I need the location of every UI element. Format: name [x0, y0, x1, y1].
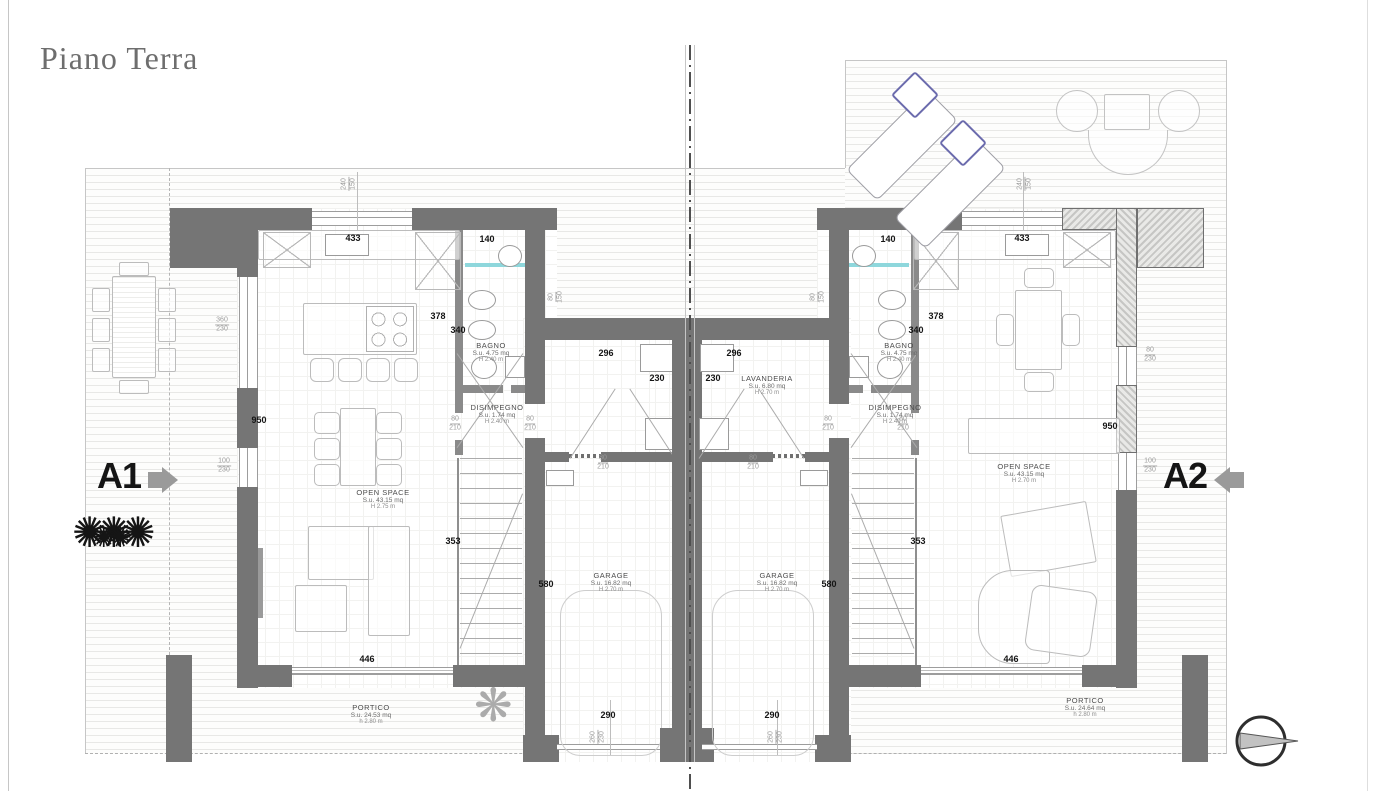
room-label-lavanderia-a2: LAVANDERIA S.u. 6.80 mq H 2.70 m [741, 374, 792, 396]
frac-top: 80 [547, 292, 556, 302]
room-name: BAGNO [473, 341, 510, 350]
sofa-chaise [308, 526, 374, 580]
staircase [460, 458, 522, 665]
toilet [468, 290, 496, 310]
frac-bottom: 150 [350, 178, 358, 190]
room-area: S.u. 6.80 mq [741, 383, 792, 390]
room-label-garage-a1: GARAGE S.u. 16.82 mq H 2.70 m [591, 571, 631, 593]
frac-top: 80 [1145, 346, 1155, 355]
dimension-label: 353 [910, 536, 925, 546]
outdoor-chair [92, 318, 110, 342]
dim-leader [777, 700, 778, 755]
room-area: S.u. 1.74 mq [869, 412, 922, 419]
washbasin [498, 245, 522, 267]
wall-segment-party [672, 318, 696, 762]
tall-cabinet [1063, 232, 1111, 268]
property-centerline [689, 45, 691, 790]
frac-bottom: 210 [747, 464, 759, 472]
unit-label-a2: A2 [1163, 455, 1207, 497]
dimension-fraction: 80210 [449, 415, 461, 432]
wall-segment [237, 208, 258, 277]
window [312, 211, 412, 226]
outdoor-chair [92, 288, 110, 312]
dimension-fraction: 80210 [747, 454, 759, 471]
outdoor-chair [158, 318, 176, 342]
frac-bottom: 210 [897, 425, 909, 433]
room-name: OPEN SPACE [997, 462, 1050, 471]
dining-chair [376, 464, 402, 486]
car-outline [560, 590, 662, 756]
wall-footing [660, 728, 704, 762]
dining-table [340, 408, 376, 486]
frac-bottom: 210 [822, 425, 834, 433]
dining-chair [1024, 268, 1054, 288]
deck-edge-top-left [85, 168, 845, 169]
room-height: H 2.40 m [869, 419, 922, 425]
room-name: DISIMPEGNO [471, 403, 524, 412]
frac-bottom: 230 [599, 731, 607, 743]
room-height: H 2.70 m [741, 390, 792, 396]
room-height: h 2.80 m [351, 719, 391, 725]
frac-bottom: 150 [819, 291, 827, 303]
frac-top: 80 [823, 415, 833, 424]
frac-top: 360 [215, 316, 229, 325]
room-height: H 2.40 m [881, 357, 918, 363]
north-arrow-icon [1234, 712, 1302, 770]
tree-icon: ❋ [474, 682, 513, 728]
party-line-edge [685, 45, 686, 762]
frac-bottom: 210 [449, 425, 461, 433]
dimension-label: 950 [1102, 421, 1117, 431]
wall-segment [170, 208, 237, 268]
room-label-openspace-a2: OPEN SPACE S.u. 43.15 mq H 2.70 m [997, 462, 1050, 484]
dimension-fraction: 80210 [597, 454, 609, 471]
room-name: GARAGE [757, 571, 797, 580]
frac-top: 80 [525, 415, 535, 424]
frac-top: 100 [217, 457, 231, 466]
frac-bottom: 230 [777, 731, 785, 743]
cooktop [366, 306, 414, 352]
staircase [852, 458, 914, 665]
room-name: BAGNO [881, 341, 918, 350]
outdoor-chair [119, 380, 149, 394]
frac-bottom: 230 [216, 326, 228, 334]
bar-stool [394, 358, 418, 382]
room-label-disimpegno-a2: DISIMPEGNO S.u. 1.74 mq H 2.40 m [869, 403, 922, 425]
deck-edge-left [85, 168, 86, 754]
a2-arrow-icon [1230, 472, 1244, 488]
wall-segment [829, 208, 849, 404]
a1-arrow-icon [148, 472, 162, 488]
frac-top: 260 [767, 730, 776, 744]
dimension-label: 340 [908, 325, 923, 335]
dining-table [1015, 290, 1062, 370]
wall-segment [237, 487, 258, 688]
dimension-label: 950 [251, 415, 266, 425]
dimension-fraction: 240150 [1016, 177, 1033, 191]
outdoor-armchair [1158, 90, 1200, 132]
floor-plan-sheet: Piano Terra [0, 0, 1374, 791]
dimension-label: 290 [600, 710, 615, 720]
frac-bottom: 230 [1144, 356, 1156, 364]
wall-segment [523, 735, 559, 762]
note-box [546, 470, 574, 486]
pantry-cabinet [415, 232, 461, 290]
car-outline [712, 590, 814, 756]
dimension-label: 230 [705, 373, 720, 383]
room-label-portico-a1: PORTICO S.u. 24.53 mq h 2.80 m [351, 703, 391, 725]
wall-segment [455, 393, 463, 413]
dimension-fraction: 100230 [217, 457, 231, 474]
dimension-label: 140 [479, 234, 494, 244]
dining-chair [314, 438, 340, 460]
room-height: H 2.40 m [473, 357, 510, 363]
frac-top: 100 [1143, 457, 1157, 466]
room-name: DISIMPEGNO [869, 403, 922, 412]
wall-segment [1137, 208, 1204, 268]
sofa [368, 526, 410, 636]
bar-stool [338, 358, 362, 382]
room-area: S.u. 16.82 mq [757, 580, 797, 587]
frac-top: 80 [450, 415, 460, 424]
sheet-border-left [8, 0, 9, 791]
wall-segment [545, 452, 569, 462]
window [239, 277, 258, 388]
dimension-label: 340 [450, 325, 465, 335]
frac-top: 240 [340, 177, 349, 191]
dimension-fraction: 80230 [1144, 346, 1156, 363]
sliding-door [921, 667, 1082, 675]
frac-bottom: 230 [218, 467, 230, 475]
room-height: H 2.75 m [356, 504, 409, 510]
dimension-fraction: 80150 [809, 291, 826, 303]
tall-cabinet [263, 232, 311, 268]
deck-edge-right [1226, 60, 1227, 754]
outdoor-chair [92, 348, 110, 372]
room-name: GARAGE [591, 571, 631, 580]
page-title: Piano Terra [40, 40, 198, 77]
dimension-fraction: 240150 [340, 177, 357, 191]
room-area: S.u. 43.15 mq [356, 497, 409, 504]
bidet [468, 320, 496, 340]
portico-pillar [166, 655, 192, 762]
frac-top: 80 [809, 292, 818, 302]
dining-chair [1024, 372, 1054, 392]
room-height: H 2.70 m [757, 587, 797, 593]
dimension-label: 230 [649, 373, 664, 383]
room-area: S.u. 4.75 mq [473, 350, 510, 357]
dim-leader [921, 670, 1082, 671]
dimension-label: 353 [445, 536, 460, 546]
room-area: S.u. 4.75 mq [881, 350, 918, 357]
room-area: S.u. 24.53 mq [351, 712, 391, 719]
outdoor-table [112, 276, 156, 378]
sheet-border-right [1367, 0, 1368, 791]
washbasin [852, 245, 876, 267]
dimension-fraction: 80210 [524, 415, 536, 432]
dimension-label: 378 [430, 311, 445, 321]
a1-arrow-icon [162, 467, 178, 493]
outdoor-chair [119, 262, 149, 276]
dining-chair [314, 412, 340, 434]
room-label-openspace-a1: OPEN SPACE S.u. 43.15 mq H 2.75 m [356, 488, 409, 510]
dining-chair [1062, 314, 1080, 346]
dim-leader [610, 700, 611, 755]
wall-segment [1116, 208, 1137, 347]
bar-stool [366, 358, 390, 382]
dim-leader [292, 670, 453, 671]
dining-chair [376, 438, 402, 460]
wall-segment [545, 318, 678, 340]
dimension-fraction: 80210 [822, 415, 834, 432]
room-name: PORTICO [351, 703, 391, 712]
wall-segment [815, 735, 851, 762]
bidet [878, 320, 906, 340]
dimension-label: 296 [598, 348, 613, 358]
room-name: LAVANDERIA [741, 374, 792, 383]
room-area: S.u. 24.64 mq [1065, 705, 1105, 712]
a2-arrow-icon [1214, 467, 1230, 493]
dimension-label: 378 [928, 311, 943, 321]
dimension-fraction: 360230 [215, 316, 229, 333]
dimension-fraction: 260230 [767, 730, 784, 744]
dimension-label: 140 [880, 234, 895, 244]
frac-top: 260 [589, 730, 598, 744]
outdoor-coffee-table [1104, 94, 1150, 130]
frac-bottom: 150 [557, 291, 565, 303]
window [1118, 347, 1137, 385]
frac-top: 80 [748, 454, 758, 463]
window [962, 211, 1062, 226]
room-height: H 2.70 m [997, 478, 1050, 484]
dimension-label: 433 [345, 233, 360, 243]
dimension-label: 446 [1003, 654, 1018, 664]
dimension-fraction: 80150 [547, 291, 564, 303]
frac-top: 240 [1016, 177, 1025, 191]
sliding-door [292, 667, 453, 675]
window [239, 448, 258, 487]
room-name: PORTICO [1065, 696, 1105, 705]
outdoor-chair [158, 348, 176, 372]
dining-chair [314, 464, 340, 486]
party-line-edge [694, 45, 695, 762]
dimension-label: 296 [726, 348, 741, 358]
wall-segment [805, 452, 829, 462]
frac-bottom: 230 [1144, 467, 1156, 475]
frac-bottom: 210 [597, 464, 609, 472]
deck-edge-step [845, 60, 846, 168]
tv-unit [258, 548, 263, 618]
armchair [1024, 584, 1099, 659]
wall-segment [696, 452, 773, 462]
room-label-portico-a2: PORTICO S.u. 24.64 mq h 2.80 m [1065, 696, 1105, 718]
stair-rail [457, 458, 459, 665]
bar-stool [310, 358, 334, 382]
bush-icon: ✺✺ [92, 524, 125, 552]
door-swing [570, 389, 616, 459]
room-label-garage-a2: GARAGE S.u. 16.82 mq H 2.70 m [757, 571, 797, 593]
room-name: OPEN SPACE [356, 488, 409, 497]
room-height: h 2.80 m [1065, 712, 1105, 718]
dimension-fraction: 100230 [1143, 457, 1157, 474]
note-box [800, 470, 828, 486]
door-swing [758, 389, 804, 459]
dimension-label: 580 [538, 579, 553, 589]
coffee-table [295, 585, 347, 632]
window [1118, 453, 1137, 490]
unit-label-a1: A1 [97, 455, 141, 497]
room-area: S.u. 16.82 mq [591, 580, 631, 587]
dimension-label: 433 [1014, 233, 1029, 243]
room-label-bagno-a2: BAGNO S.u. 4.75 mq H 2.40 m [881, 341, 918, 363]
room-height: H 2.40 m [471, 419, 524, 425]
frac-top: 80 [598, 454, 608, 463]
wall-segment [525, 208, 545, 404]
stair-rail [915, 458, 917, 665]
dimension-fraction: 260230 [589, 730, 606, 744]
room-label-disimpegno-a1: DISIMPEGNO S.u. 1.74 mq H 2.40 m [471, 403, 524, 425]
room-height: H 2.70 m [591, 587, 631, 593]
wall-segment [696, 318, 829, 340]
portico-pillar [1182, 655, 1208, 762]
frac-bottom: 150 [1026, 178, 1034, 190]
room-area: S.u. 43.15 mq [997, 471, 1050, 478]
frac-bottom: 210 [524, 425, 536, 433]
wall-segment [849, 385, 863, 393]
outdoor-armchair [1056, 90, 1098, 132]
wall-segment [511, 385, 525, 393]
room-label-bagno-a1: BAGNO S.u. 4.75 mq H 2.40 m [473, 341, 510, 363]
dimension-label: 446 [359, 654, 374, 664]
room-area: S.u. 1.74 mq [471, 412, 524, 419]
dining-chair [376, 412, 402, 434]
dimension-label: 290 [764, 710, 779, 720]
dining-chair [996, 314, 1014, 346]
toilet [878, 290, 906, 310]
outdoor-chair [158, 288, 176, 312]
kitchen-island [968, 418, 1120, 454]
dimension-label: 580 [821, 579, 836, 589]
deck-edge-top-right [845, 60, 1226, 61]
wall-segment [1116, 490, 1137, 688]
